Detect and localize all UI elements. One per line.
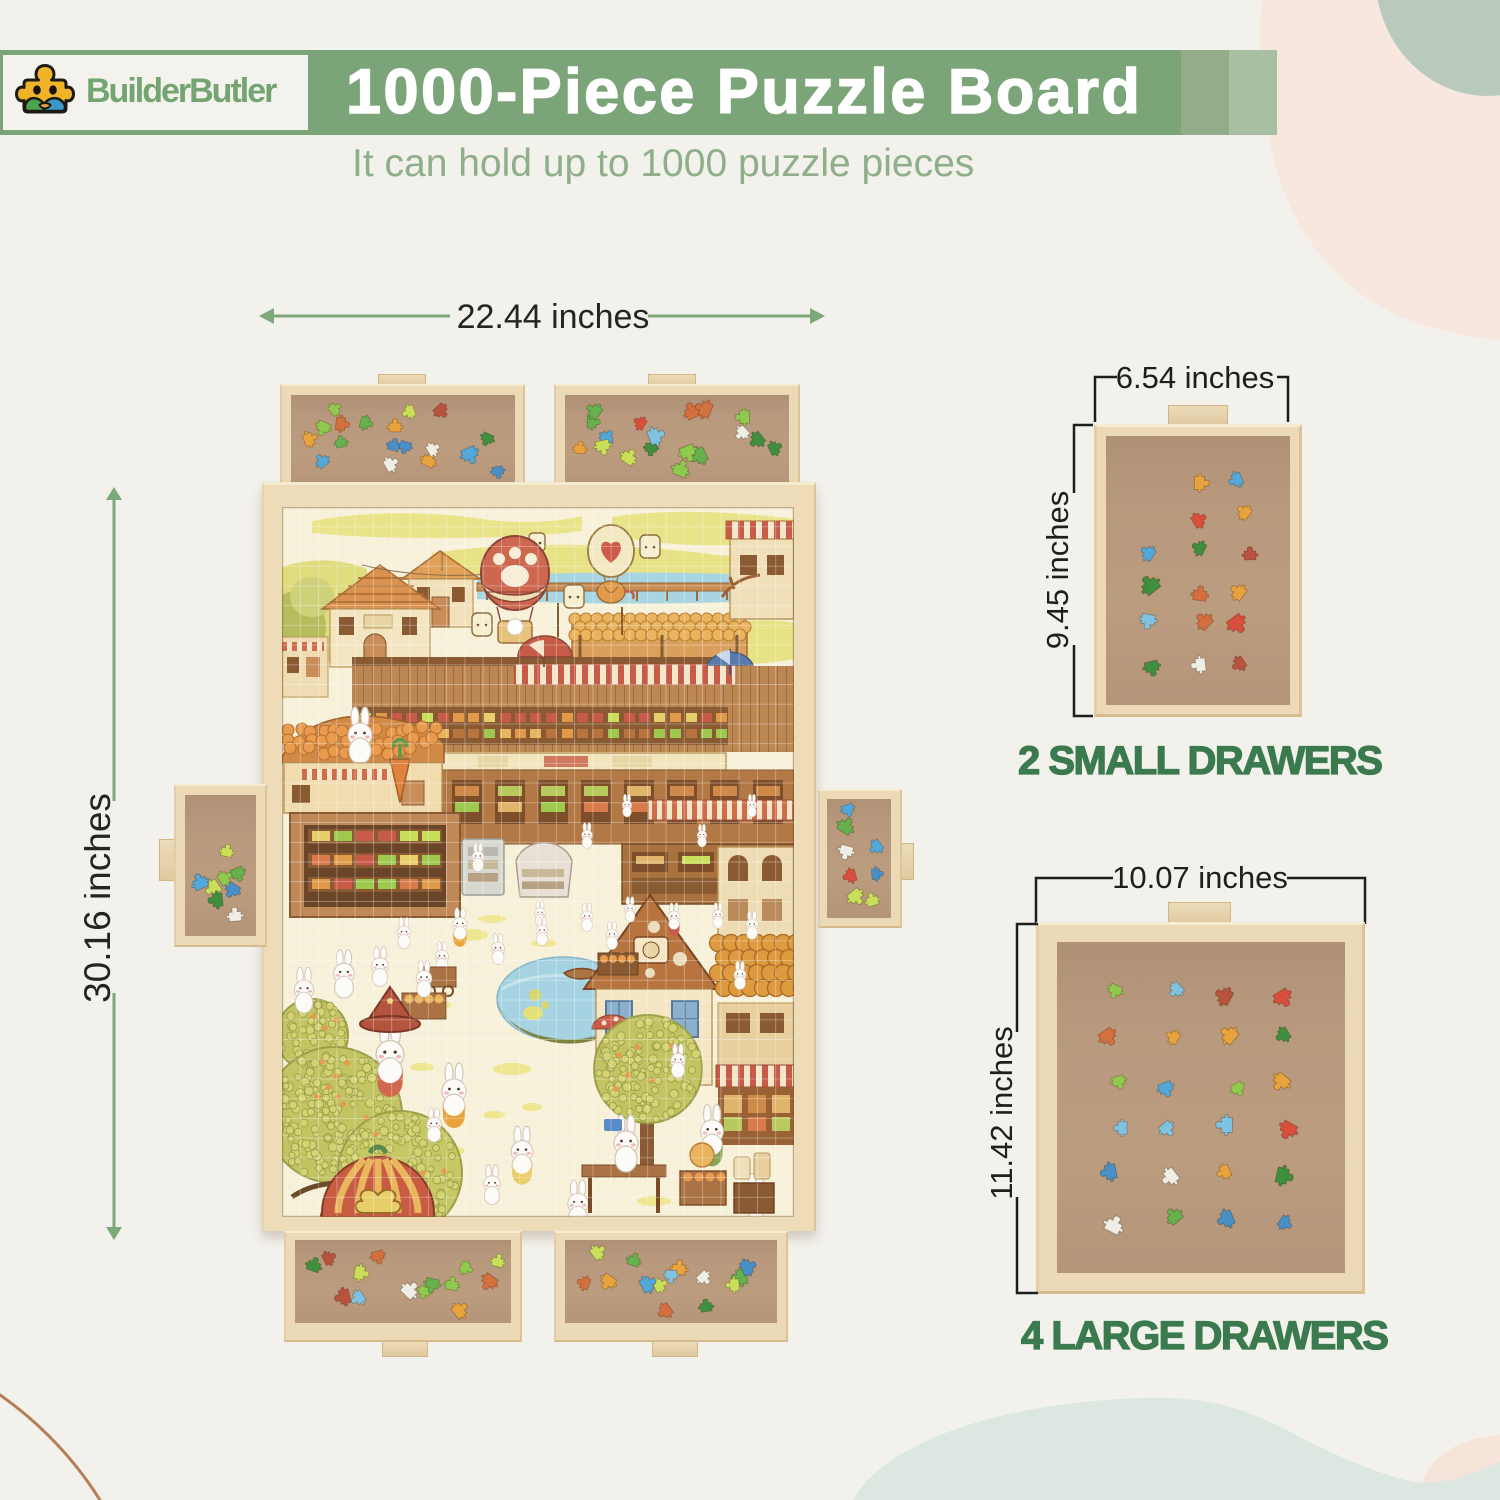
svg-text:10.07 inches: 10.07 inches [1112,860,1288,895]
svg-text:9.45 inches: 9.45 inches [1040,491,1075,650]
svg-text:6.54 inches: 6.54 inches [1116,360,1275,395]
svg-text:11.42 inches: 11.42 inches [985,1026,1019,1200]
svg-text:22.44 inches: 22.44 inches [457,299,650,333]
svg-text:30.16 inches: 30.16 inches [84,793,118,1003]
